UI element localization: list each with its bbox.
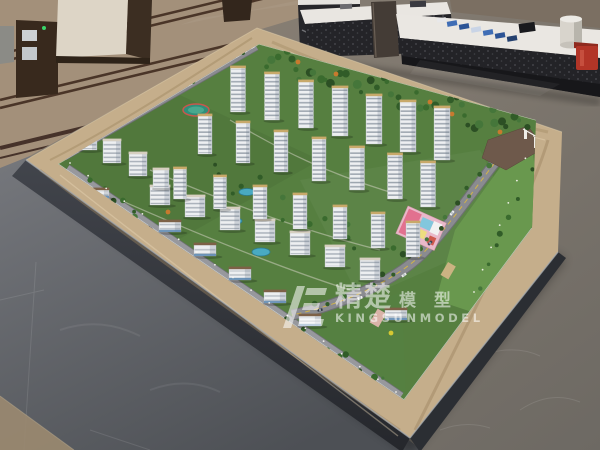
counter-item xyxy=(340,4,352,10)
midrise-building-roof xyxy=(129,152,148,155)
tree xyxy=(322,216,327,221)
street-light xyxy=(395,391,397,393)
tree xyxy=(267,56,275,64)
swimming-pool xyxy=(252,248,270,256)
highrise-tower-windows xyxy=(350,150,364,190)
tree xyxy=(353,80,362,89)
highrise-tower-roof xyxy=(312,137,327,140)
tree xyxy=(506,215,511,220)
highrise-tower-windows xyxy=(275,134,288,172)
tree xyxy=(524,124,530,130)
tree xyxy=(342,70,350,78)
street-light xyxy=(377,378,379,380)
tree xyxy=(475,120,483,128)
midrise-building-roof xyxy=(325,245,346,248)
midrise-building-roof xyxy=(360,258,381,261)
highrise-tower-windows xyxy=(435,110,450,160)
street-light xyxy=(341,353,343,355)
tree xyxy=(374,85,380,91)
street-light xyxy=(286,315,288,317)
street-light xyxy=(232,277,234,279)
highrise-tower-windows xyxy=(231,70,245,112)
red-bin-body xyxy=(576,46,598,70)
pillar-face xyxy=(56,0,128,58)
highrise-tower-windows xyxy=(334,209,347,239)
lowrise-building-roof xyxy=(264,290,287,293)
highrise-tower-roof xyxy=(366,94,383,97)
tree xyxy=(264,64,269,69)
midrise-building-windows xyxy=(361,262,380,280)
tree xyxy=(443,215,448,220)
highrise-tower-windows xyxy=(174,171,186,199)
tree xyxy=(310,69,317,76)
highrise-tower-roof xyxy=(434,106,451,109)
swimming-pool xyxy=(239,189,255,196)
tree xyxy=(423,104,429,110)
street-light xyxy=(490,247,492,249)
tree xyxy=(306,221,312,227)
highrise-tower-windows xyxy=(214,179,226,209)
tree xyxy=(239,184,244,189)
highrise-tower-windows xyxy=(199,118,212,154)
highrise-tower-windows xyxy=(407,225,420,257)
tree xyxy=(503,124,508,129)
lobby-pillar xyxy=(56,0,152,64)
street-light xyxy=(499,224,501,226)
tree xyxy=(275,54,282,61)
tree xyxy=(486,163,492,169)
tree xyxy=(455,200,460,205)
tree xyxy=(464,186,468,190)
tree xyxy=(425,237,429,241)
tree xyxy=(293,67,298,72)
lowrise-building-roof xyxy=(159,220,182,223)
photo-architectural-model: 精楚 模 型 KINGSUNMODEL xyxy=(0,0,600,450)
tree xyxy=(258,175,263,180)
midrise-building-roof xyxy=(103,139,122,142)
court-infield xyxy=(188,107,204,114)
tree xyxy=(367,76,375,84)
counter-item xyxy=(410,1,426,8)
tree xyxy=(280,195,286,201)
tree xyxy=(516,197,520,201)
street-light xyxy=(482,269,484,271)
yellow-marker xyxy=(389,331,394,336)
highrise-tower-roof xyxy=(333,205,348,208)
tree xyxy=(359,90,363,94)
tree xyxy=(391,245,397,251)
tree xyxy=(439,226,444,231)
tree-autumn xyxy=(334,72,339,77)
tree xyxy=(497,231,503,237)
tree xyxy=(391,273,395,277)
tree xyxy=(447,96,454,103)
tree xyxy=(400,251,406,257)
tree xyxy=(343,351,349,357)
highrise-tower-roof xyxy=(293,193,308,196)
street-light xyxy=(525,157,527,159)
tree xyxy=(231,192,235,196)
midrise-building-windows xyxy=(154,172,169,188)
street-light xyxy=(196,251,198,253)
tree-autumn xyxy=(450,112,455,117)
midrise-building-windows xyxy=(256,223,275,242)
highrise-tower-roof xyxy=(349,146,365,149)
tree xyxy=(396,94,402,100)
tree xyxy=(478,286,482,290)
highrise-tower-roof xyxy=(236,121,251,124)
lowrise-building-windows xyxy=(265,294,286,303)
street-light xyxy=(323,340,325,342)
tree xyxy=(465,123,470,128)
tree xyxy=(417,105,424,112)
street-light xyxy=(533,135,535,137)
highrise-tower-roof xyxy=(406,221,421,224)
tree xyxy=(414,90,419,95)
street-light xyxy=(473,291,475,293)
street-light xyxy=(142,213,144,215)
tree-autumn xyxy=(166,210,171,215)
highrise-tower-windows xyxy=(313,141,326,181)
cabinet-screen xyxy=(22,30,37,41)
tree xyxy=(325,302,329,306)
shopfront xyxy=(194,254,216,256)
lobby-pillar-2 xyxy=(222,0,252,22)
highrise-tower-roof xyxy=(298,80,314,83)
highrise-tower-windows xyxy=(372,216,385,248)
shopfront xyxy=(299,324,321,326)
lowrise-building-roof xyxy=(229,267,252,270)
highrise-tower-roof xyxy=(420,161,436,164)
highrise-tower-roof xyxy=(332,86,349,89)
street-light xyxy=(123,200,125,202)
highrise-tower-windows xyxy=(237,125,250,163)
midrise-building-roof xyxy=(185,195,206,198)
tree-autumn xyxy=(428,100,433,105)
tree xyxy=(352,246,356,250)
tree xyxy=(517,118,521,122)
cylinder-top xyxy=(560,16,582,23)
tree xyxy=(132,210,136,214)
tree xyxy=(388,91,394,97)
tree xyxy=(385,80,390,85)
street-light xyxy=(105,188,107,190)
street-light xyxy=(507,202,509,204)
street-light xyxy=(69,162,71,164)
highrise-tower-roof xyxy=(264,72,280,75)
tree xyxy=(213,163,217,167)
tree xyxy=(495,243,499,247)
tree-autumn xyxy=(296,60,301,65)
tree xyxy=(281,218,285,222)
lowrise-building-roof xyxy=(194,243,217,246)
tree xyxy=(477,172,482,177)
exit-sign-light xyxy=(42,26,46,30)
tree xyxy=(120,198,126,204)
highrise-tower-windows xyxy=(421,165,435,207)
highrise-tower-roof xyxy=(230,66,246,69)
highrise-tower-roof xyxy=(213,175,227,178)
street-light xyxy=(250,289,252,291)
highrise-tower-windows xyxy=(401,104,416,152)
street-light xyxy=(359,366,361,368)
midrise-building-windows xyxy=(326,249,345,267)
midrise-building-windows xyxy=(291,235,310,255)
highrise-tower-windows xyxy=(265,76,279,120)
tree xyxy=(467,194,471,198)
red-bin xyxy=(574,42,598,70)
tree xyxy=(312,301,318,307)
shopfront xyxy=(159,230,181,232)
red-bin-highlight xyxy=(580,50,584,66)
highrise-tower-roof xyxy=(400,100,417,103)
tree xyxy=(487,263,491,267)
shopfront xyxy=(264,301,286,303)
street-light xyxy=(268,302,270,304)
midrise-building-roof xyxy=(153,168,170,171)
highrise-tower-roof xyxy=(198,114,213,117)
highrise-tower-roof xyxy=(274,130,289,133)
street-light xyxy=(305,328,307,330)
midrise-building-windows xyxy=(221,211,240,230)
shopfront xyxy=(229,278,251,280)
street-light xyxy=(214,264,216,266)
street-light xyxy=(516,180,518,182)
scene-canvas xyxy=(0,0,600,450)
tree xyxy=(380,272,386,278)
street-light xyxy=(178,238,180,240)
tree xyxy=(459,102,465,108)
shopfront xyxy=(385,318,407,320)
tree xyxy=(381,377,384,380)
midrise-building-windows xyxy=(130,156,147,176)
tree xyxy=(353,283,358,288)
pillar-side xyxy=(126,0,152,60)
cylinder-shade xyxy=(574,19,582,45)
highrise-tower-roof xyxy=(371,212,386,215)
lowrise-building-roof xyxy=(299,314,322,317)
highrise-tower-windows xyxy=(299,84,313,128)
highrise-tower-windows xyxy=(333,90,348,136)
lowrise-building-roof xyxy=(385,308,408,311)
gray-box xyxy=(0,26,14,64)
midrise-building-windows xyxy=(104,143,121,163)
tree xyxy=(372,283,376,287)
highrise-tower-roof xyxy=(173,167,187,170)
street-light xyxy=(87,175,89,177)
tree xyxy=(342,294,347,299)
highrise-tower-windows xyxy=(254,189,267,219)
highrise-tower-windows xyxy=(294,197,307,229)
tree xyxy=(490,119,498,127)
highrise-tower-windows xyxy=(388,157,402,199)
highrise-tower-roof xyxy=(387,153,403,156)
tree xyxy=(462,113,467,118)
highrise-tower-windows xyxy=(367,98,382,144)
cabinet-screen xyxy=(22,47,37,60)
street-light xyxy=(160,226,162,228)
tree-autumn xyxy=(498,130,503,135)
tree xyxy=(87,177,92,182)
lowrise-building-windows xyxy=(195,247,216,256)
tree xyxy=(530,167,534,171)
highrise-tower-roof xyxy=(253,185,268,188)
tree xyxy=(289,56,296,63)
